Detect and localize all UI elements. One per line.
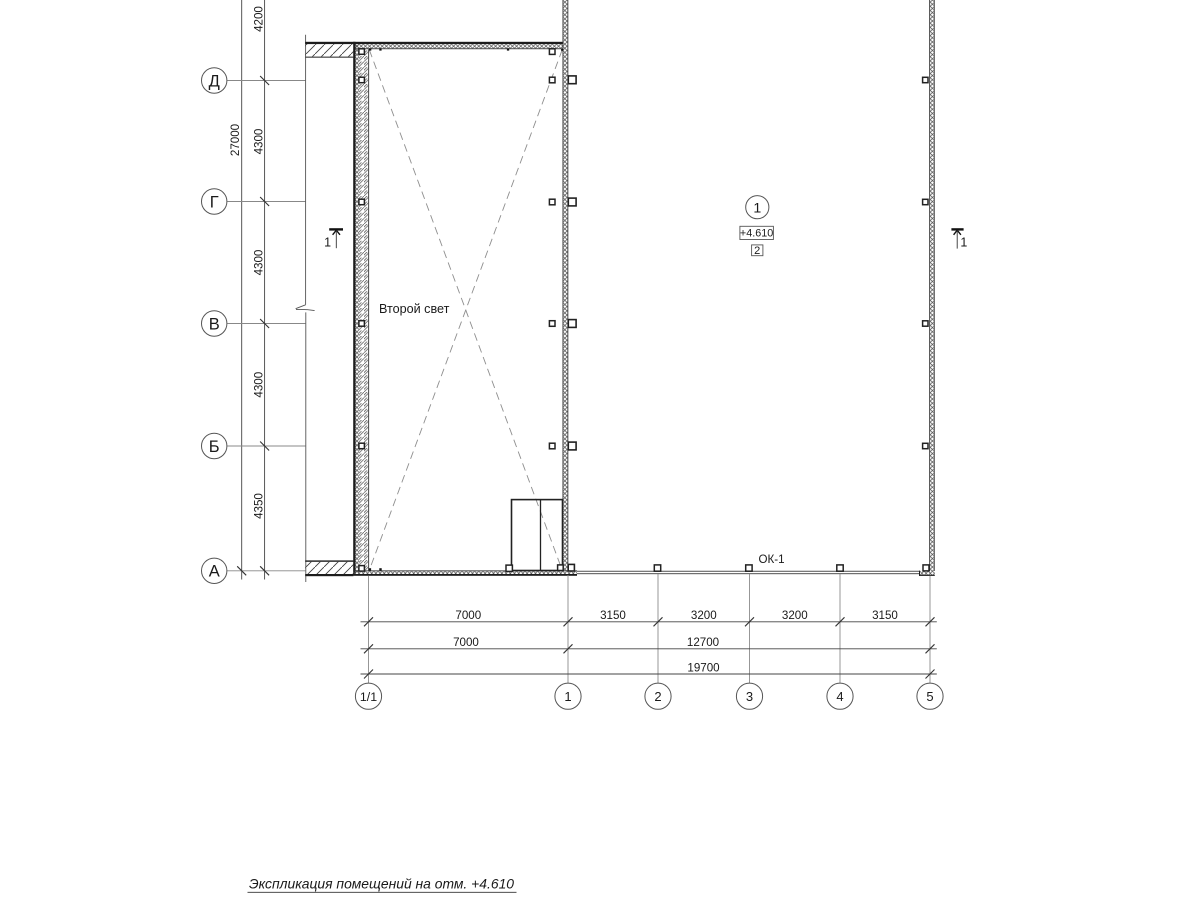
svg-text:3200: 3200 [691,609,717,622]
svg-text:А: А [209,563,220,581]
svg-text:1: 1 [960,236,967,250]
svg-text:ОК-1: ОК-1 [759,553,785,566]
svg-text:1: 1 [324,236,331,250]
svg-text:27000: 27000 [229,124,242,156]
svg-text:4300: 4300 [253,250,266,276]
svg-text:3150: 3150 [872,609,898,622]
svg-text:4300: 4300 [253,372,266,398]
svg-text:Г: Г [210,193,219,211]
svg-text:Второй свет: Второй свет [379,302,450,316]
svg-text:В: В [209,315,220,333]
svg-text:7000: 7000 [453,636,479,649]
svg-text:3200: 3200 [782,609,808,622]
svg-text:7000: 7000 [455,609,481,622]
svg-text:4350: 4350 [253,493,266,519]
svg-text:Б: Б [209,438,220,456]
svg-text:19700: 19700 [687,661,719,674]
svg-text:2: 2 [654,689,661,704]
svg-text:5: 5 [926,689,933,704]
svg-text:Экспликация помещений на отм.: Экспликация помещений на отм. +4.610 [249,875,514,891]
svg-text:4200: 4200 [253,6,266,32]
svg-text:+4.610: +4.610 [740,228,773,240]
svg-text:1: 1 [753,200,761,216]
svg-text:3150: 3150 [600,609,626,622]
svg-text:4300: 4300 [253,129,266,155]
svg-text:3: 3 [746,689,753,704]
svg-text:1/1: 1/1 [360,690,377,704]
svg-text:Д: Д [209,72,220,90]
svg-text:12700: 12700 [687,636,719,649]
svg-text:1: 1 [564,689,571,704]
svg-text:2: 2 [754,245,760,257]
svg-text:4: 4 [836,689,843,704]
